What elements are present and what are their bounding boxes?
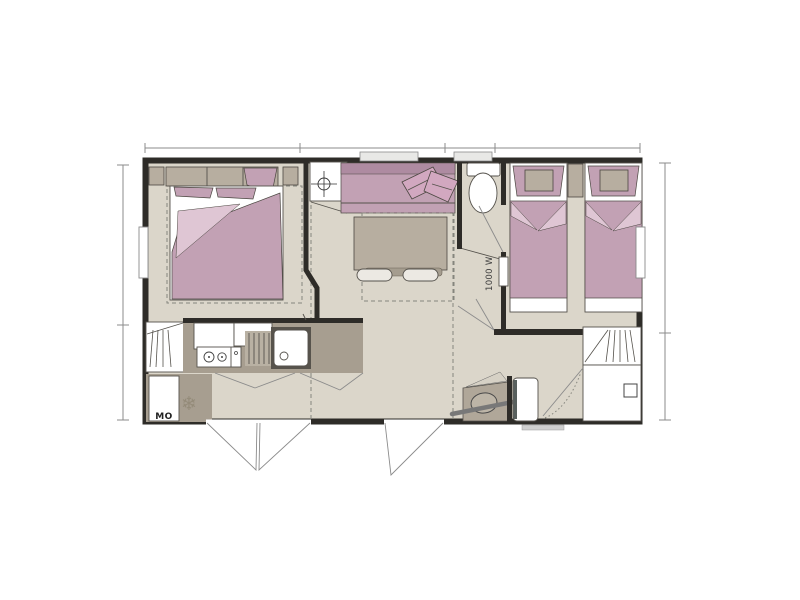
window-right-wall: [636, 227, 645, 278]
shower-drain: [624, 384, 637, 397]
nightstand: [568, 164, 583, 197]
double-door-leaf-left: [207, 423, 257, 470]
window-top-living: [360, 152, 418, 161]
door-threshold: [522, 425, 564, 430]
toilet-bowl: [469, 173, 497, 213]
wall-wc-left: [457, 161, 462, 249]
microwave-label: MO: [155, 412, 173, 422]
counter-back-edge: [183, 318, 363, 323]
sink-drainboard: [245, 331, 271, 366]
floor-plan-page: ❄ MO: [0, 0, 800, 600]
stove: [197, 347, 241, 367]
bed-pillow-right: [216, 188, 256, 199]
bedroom-master: [149, 167, 302, 303]
fridge-snowflake-icon: ❄: [181, 393, 197, 415]
floor-plan-drawing: ❄ MO: [0, 0, 800, 600]
wall-wc-right-upper: [501, 161, 506, 205]
wall-bedroom-bottom: [494, 329, 583, 335]
main-door-swing: [385, 423, 443, 475]
corner-shelf-left: [149, 167, 164, 185]
corner-shelf-right: [283, 167, 298, 185]
heater-power-label: 1000 W: [485, 256, 495, 291]
kitchen-cabinet-a: [194, 323, 234, 349]
radiator: [499, 257, 508, 286]
chair-right: [403, 269, 438, 281]
chair-left: [357, 269, 392, 281]
sofa-backrest: [341, 163, 455, 174]
bed-pillow-left: [174, 187, 213, 198]
window-left-wall: [139, 227, 148, 278]
dining-table: [354, 217, 447, 270]
window-top-wc: [454, 152, 492, 161]
wall-vanity-divider: [507, 376, 512, 422]
double-door-leaf-right: [259, 423, 310, 470]
entrance-doors: [206, 420, 444, 476]
